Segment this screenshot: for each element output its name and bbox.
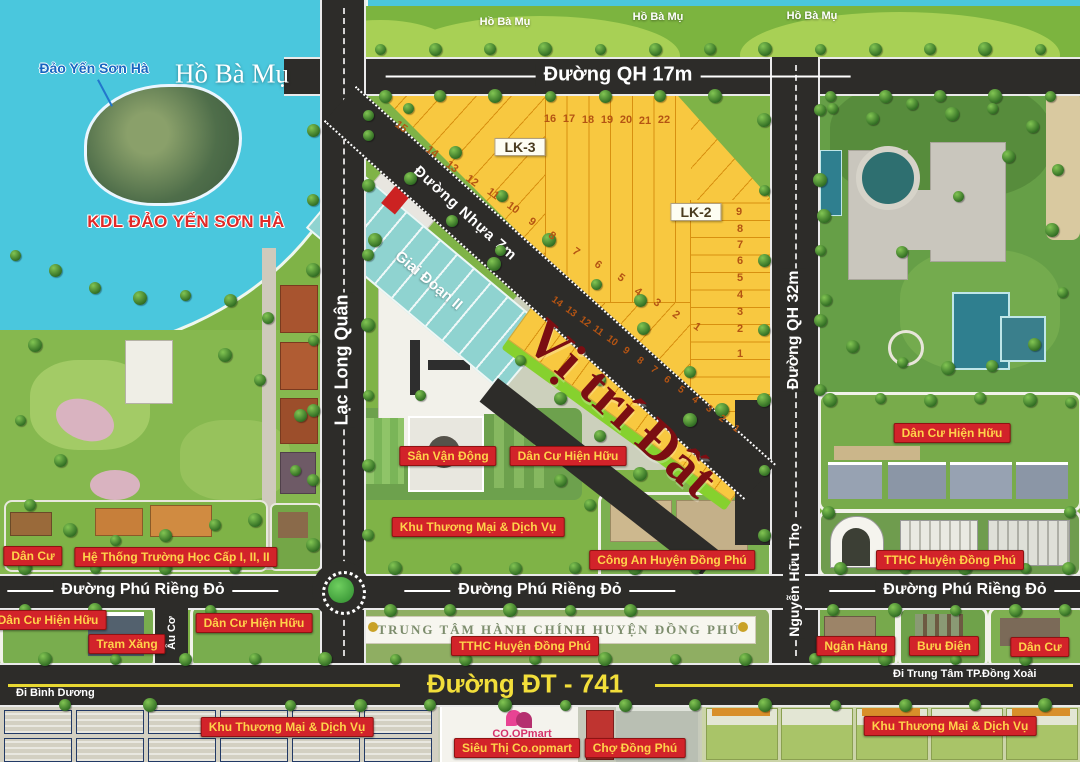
label-khu-tm-dv-center: Khu Thương Mại & Dịch Vụ bbox=[392, 517, 565, 537]
tree-icon bbox=[820, 294, 832, 306]
tree-icon bbox=[307, 124, 320, 137]
tree-icon bbox=[689, 699, 701, 711]
tree-icon bbox=[159, 529, 172, 542]
zone-badge-lk2: LK-2 bbox=[670, 203, 721, 221]
shophouse-building bbox=[4, 738, 72, 762]
tree-icon bbox=[759, 465, 770, 476]
tree-icon bbox=[815, 245, 826, 256]
tree-icon bbox=[10, 250, 21, 261]
road-label-au-co: Âu Cơ bbox=[163, 614, 181, 651]
tree-icon bbox=[1028, 338, 1041, 351]
tree-icon bbox=[363, 390, 374, 401]
tree-icon bbox=[290, 465, 301, 476]
building bbox=[280, 285, 318, 333]
plot-number-lk2_col-2: 2 bbox=[737, 323, 743, 335]
tree-icon bbox=[1026, 120, 1039, 133]
tree-icon bbox=[906, 98, 918, 110]
tree-icon bbox=[487, 257, 501, 271]
tree-icon bbox=[388, 561, 402, 575]
tree-icon bbox=[554, 474, 567, 487]
tree-icon bbox=[390, 654, 401, 665]
tree-icon bbox=[254, 374, 266, 386]
tree-icon bbox=[599, 90, 612, 103]
tree-icon bbox=[827, 103, 838, 114]
label-tthc-huyen-dong-phu-east: TTHC Huyện Đồng Phú bbox=[876, 550, 1024, 570]
tree-icon bbox=[759, 185, 770, 196]
tree-icon bbox=[218, 348, 232, 362]
tree-icon bbox=[363, 130, 374, 141]
tree-icon bbox=[827, 604, 839, 616]
tree-icon bbox=[362, 179, 375, 192]
masterplan-map: TRUNG TÂM HÀNH CHÍNH HUYỆN ĐỒNG PHÚ CO.O… bbox=[0, 0, 1080, 762]
tree-icon bbox=[180, 290, 191, 301]
tree-icon bbox=[619, 699, 632, 712]
building bbox=[278, 512, 308, 538]
tree-icon bbox=[987, 103, 998, 114]
tree-icon bbox=[866, 112, 879, 125]
tree-icon bbox=[830, 700, 841, 711]
plot-number-lk3_top-22: 22 bbox=[658, 114, 670, 126]
tree-icon bbox=[362, 249, 374, 261]
tree-icon bbox=[565, 605, 576, 616]
label-ngan-hang: Ngân Hàng bbox=[816, 636, 895, 656]
tree-icon bbox=[814, 104, 826, 116]
tree-icon bbox=[896, 246, 908, 258]
tree-icon bbox=[953, 191, 964, 202]
tree-icon bbox=[249, 653, 261, 665]
tree-icon bbox=[941, 361, 955, 375]
building bbox=[280, 342, 318, 390]
label-truong-hoc: Hệ Thống Trường Học Cấp I, II, II bbox=[74, 547, 277, 567]
tree-icon bbox=[403, 103, 414, 114]
tree-icon bbox=[684, 366, 696, 378]
tree-icon bbox=[307, 404, 320, 417]
tree-icon bbox=[133, 291, 147, 305]
tree-icon bbox=[758, 254, 771, 267]
tree-icon bbox=[24, 499, 36, 511]
plot-number-lk2_col-8: 8 bbox=[737, 223, 743, 235]
plot-number-lk2_col-5: 5 bbox=[737, 272, 743, 284]
shophouse-building bbox=[76, 710, 144, 734]
tree-icon bbox=[757, 393, 771, 407]
tree-icon bbox=[446, 215, 458, 227]
tree-icon bbox=[38, 652, 52, 666]
shophouse-building bbox=[292, 738, 360, 762]
label-dan-cu-hien-huu-south: Dân Cư Hiện Hữu bbox=[196, 613, 313, 633]
tree-icon bbox=[294, 409, 307, 422]
tree-icon bbox=[817, 209, 831, 223]
tree-icon bbox=[598, 652, 612, 666]
shophouse-building bbox=[364, 710, 432, 734]
tree-icon bbox=[758, 529, 771, 542]
label-cong-an-huyen-dong-phu: Công An Huyện Đồng Phú bbox=[589, 550, 755, 570]
plot-number-lk3_top-17: 17 bbox=[563, 113, 575, 125]
label-dan-cu-hien-huu-sw: Dân Cư Hiện Hữu bbox=[0, 610, 106, 630]
tree-icon bbox=[560, 700, 571, 711]
road-label-phu-rieng-do-east: Đường Phú Riềng Đỏ bbox=[875, 581, 1054, 599]
tree-icon bbox=[362, 459, 375, 472]
tree-icon bbox=[143, 698, 157, 712]
tree-icon bbox=[1038, 698, 1052, 712]
tree-icon bbox=[945, 107, 959, 121]
plot-number-lk2_col-4: 4 bbox=[737, 289, 743, 301]
resort-building bbox=[930, 142, 1006, 262]
tree-icon bbox=[986, 360, 998, 372]
plot-number-lk3_top-19: 19 bbox=[601, 114, 613, 126]
tree-icon bbox=[209, 519, 221, 531]
lake-shore-label-2: Hồ Bà Mụ bbox=[633, 11, 684, 23]
plot-number-lk3_top-20: 20 bbox=[620, 114, 632, 126]
tree-icon bbox=[584, 499, 596, 511]
road-label-qh17: Đường QH 17m bbox=[536, 64, 701, 87]
tree-icon bbox=[834, 562, 847, 575]
tree-icon bbox=[307, 194, 319, 206]
sand-patch bbox=[1046, 90, 1080, 240]
plot-number-lk2_col-6: 6 bbox=[737, 255, 743, 267]
tree-icon bbox=[888, 603, 902, 617]
tree-icon bbox=[1045, 223, 1059, 237]
tree-icon bbox=[28, 338, 42, 352]
road-label-phu-rieng-do-west: Đường Phú Riềng Đỏ bbox=[53, 581, 232, 599]
building bbox=[828, 462, 882, 499]
lake-name-label: Hồ Bà Mụ bbox=[175, 59, 289, 90]
plot-number-lk2_col-9: 9 bbox=[736, 206, 742, 218]
road-label-qh32: Đường QH 32m bbox=[782, 269, 806, 392]
tree-icon bbox=[814, 314, 827, 327]
kdl-resort-label: KDL ĐẢO YẾN SƠN HÀ bbox=[87, 212, 285, 232]
tree-icon bbox=[569, 562, 581, 574]
tree-icon bbox=[897, 357, 908, 368]
tree-icon bbox=[899, 699, 912, 712]
coopmart-logo-icon bbox=[516, 712, 532, 728]
tree-icon bbox=[1045, 91, 1056, 102]
tree-icon bbox=[637, 322, 650, 335]
tree-icon bbox=[978, 42, 992, 56]
shophouse-building bbox=[364, 738, 432, 762]
building-detail bbox=[410, 340, 420, 395]
tree-icon bbox=[624, 604, 637, 617]
tree-icon bbox=[649, 43, 662, 56]
tree-icon bbox=[988, 89, 1002, 103]
building bbox=[834, 446, 920, 460]
plot-number-lk2_col-7: 7 bbox=[737, 239, 743, 251]
tree-icon bbox=[308, 335, 319, 346]
label-khu-tm-dv-se: Khu Thương Mại & Dịch Vụ bbox=[864, 716, 1037, 736]
tree-icon bbox=[757, 113, 771, 127]
lake-shore-label-1: Hồ Bà Mụ bbox=[480, 16, 531, 28]
building-detail bbox=[428, 360, 470, 370]
road-label-nguyen-huu-tho: Nguyễn Hữu Thọ bbox=[783, 521, 805, 639]
roundabout-island bbox=[328, 577, 354, 603]
tree-icon bbox=[708, 89, 722, 103]
tree-icon bbox=[450, 563, 461, 574]
tree-icon bbox=[503, 603, 517, 617]
plot-number-lk2_col-3: 3 bbox=[737, 306, 743, 318]
tree-icon bbox=[404, 172, 417, 185]
tree-icon bbox=[54, 454, 67, 467]
tree-icon bbox=[1002, 150, 1015, 163]
label-san-van-dong: Sân Vận Động bbox=[399, 446, 496, 466]
tree-icon bbox=[368, 233, 382, 247]
building bbox=[95, 508, 143, 536]
tree-icon bbox=[63, 523, 77, 537]
tree-icon bbox=[704, 43, 716, 55]
commercial-building bbox=[781, 708, 853, 760]
tree-icon bbox=[670, 654, 681, 665]
tree-icon bbox=[1064, 506, 1076, 518]
shophouse-building bbox=[4, 710, 72, 734]
building bbox=[888, 462, 946, 499]
direction-dong-xoai: Đi Trung Tâm TP.Đồng Xoài bbox=[893, 668, 1036, 680]
tree-icon bbox=[179, 653, 192, 666]
tree-icon bbox=[434, 90, 446, 102]
tree-icon bbox=[495, 245, 506, 256]
tree-icon bbox=[318, 652, 332, 666]
road-label-dt741: Đường ĐT - 741 bbox=[427, 669, 623, 700]
tree-icon bbox=[307, 474, 319, 486]
tree-icon bbox=[879, 90, 892, 103]
tree-icon bbox=[869, 43, 882, 56]
tree-icon bbox=[1023, 393, 1037, 407]
tree-icon bbox=[1065, 397, 1076, 408]
direction-binh-duong: Đi Bình Dương bbox=[16, 687, 95, 699]
road-label-phu-rieng-do-center: Đường Phú Riềng Đỏ bbox=[450, 581, 629, 599]
label-sieu-thi-coopmart: Siêu Thị Co.opmart bbox=[454, 738, 580, 758]
label-dan-cu-nw: Dân Cư bbox=[3, 546, 62, 566]
emblem-icon bbox=[368, 622, 378, 632]
tree-icon bbox=[415, 390, 426, 401]
tree-icon bbox=[739, 653, 752, 666]
tree-icon bbox=[813, 173, 827, 187]
label-dan-cu-hien-huu-center: Dân Cư Hiện Hữu bbox=[510, 446, 627, 466]
tree-icon bbox=[89, 282, 101, 294]
tree-icon bbox=[498, 698, 512, 712]
tree-icon bbox=[969, 699, 981, 711]
tree-icon bbox=[545, 91, 556, 102]
tree-icon bbox=[924, 394, 937, 407]
commercial-roof bbox=[862, 708, 920, 716]
tree-icon bbox=[306, 263, 320, 277]
zone-badge-lk3: LK-3 bbox=[494, 138, 545, 156]
tree-icon bbox=[110, 535, 121, 546]
road-yellow-line bbox=[655, 684, 1073, 687]
tree-icon bbox=[49, 264, 62, 277]
tree-icon bbox=[384, 604, 397, 617]
shophouse-building bbox=[76, 738, 144, 762]
tree-icon bbox=[509, 562, 522, 575]
plot-number-lk3_top-18: 18 bbox=[582, 114, 594, 126]
tree-icon bbox=[1035, 44, 1046, 55]
plot-row-lk3-top bbox=[545, 96, 691, 303]
tree-icon bbox=[306, 538, 320, 552]
building bbox=[950, 462, 1012, 499]
tree-icon bbox=[595, 44, 606, 55]
tree-icon bbox=[591, 279, 602, 290]
tree-icon bbox=[654, 90, 666, 102]
tree-icon bbox=[262, 312, 274, 324]
pond bbox=[856, 146, 920, 210]
tree-icon bbox=[375, 44, 386, 55]
tree-icon bbox=[1062, 562, 1075, 575]
shophouse-building bbox=[220, 738, 288, 762]
tree-icon bbox=[15, 415, 26, 426]
tree-icon bbox=[224, 294, 237, 307]
shophouse-building bbox=[148, 738, 216, 762]
tree-icon bbox=[429, 43, 442, 56]
tree-icon bbox=[1009, 604, 1022, 617]
plot-number-lk3_top-16: 16 bbox=[544, 113, 556, 125]
label-tram-xang: Trạm Xăng bbox=[88, 634, 165, 654]
tree-icon bbox=[974, 392, 986, 404]
tree-icon bbox=[823, 393, 837, 407]
label-cho-dong-phu: Chợ Đồng Phú bbox=[585, 738, 686, 758]
tree-icon bbox=[361, 318, 375, 332]
tree-icon bbox=[815, 44, 826, 55]
garden-patch bbox=[90, 470, 140, 500]
tree-icon bbox=[248, 513, 262, 527]
tree-icon bbox=[758, 324, 770, 336]
tree-icon bbox=[934, 90, 946, 102]
label-dan-cu-hien-huu-east: Dân Cư Hiện Hữu bbox=[894, 423, 1011, 443]
tree-icon bbox=[363, 110, 374, 121]
tree-icon bbox=[449, 146, 462, 159]
arch-building-door bbox=[842, 528, 870, 566]
tree-icon bbox=[354, 699, 367, 712]
tree-icon bbox=[1059, 604, 1071, 616]
label-dan-cu-se: Dân Cư bbox=[1010, 637, 1069, 657]
phase2-label: Giai Đoạn II bbox=[392, 247, 466, 313]
tree-icon bbox=[822, 506, 835, 519]
tree-icon bbox=[285, 700, 296, 711]
tree-icon bbox=[110, 654, 121, 665]
tree-icon bbox=[538, 42, 552, 56]
tree-icon bbox=[758, 698, 772, 712]
tree-icon bbox=[950, 605, 961, 616]
plot-number-lk2_col-1: 1 bbox=[737, 348, 743, 360]
tree-icon bbox=[424, 699, 436, 711]
building bbox=[1016, 462, 1068, 499]
tree-icon bbox=[379, 90, 392, 103]
tree-icon bbox=[1057, 287, 1068, 298]
tree-icon bbox=[59, 699, 71, 711]
tree-icon bbox=[846, 340, 859, 353]
tree-icon bbox=[488, 89, 502, 103]
tree-icon bbox=[484, 43, 496, 55]
tree-icon bbox=[924, 43, 936, 55]
tree-icon bbox=[825, 91, 836, 102]
lake-shore-label-3: Hồ Bà Mụ bbox=[787, 10, 838, 22]
plot-number-lk3_top-21: 21 bbox=[639, 115, 651, 127]
label-buu-dien: Bưu Điện bbox=[909, 636, 979, 656]
island-name-label: Đảo Yến Sơn Hà bbox=[39, 60, 148, 76]
tree-icon bbox=[444, 604, 456, 616]
label-khu-tm-dv-sw: Khu Thương Mại & Dịch Vụ bbox=[201, 717, 374, 737]
label-tthc-huyen-dong-phu-south: TTHC Huyện Đồng Phú bbox=[451, 636, 599, 656]
emblem-icon bbox=[738, 622, 748, 632]
tree-icon bbox=[875, 393, 886, 404]
tree-icon bbox=[758, 42, 772, 56]
tree-icon bbox=[362, 529, 374, 541]
building bbox=[125, 340, 173, 404]
tree-icon bbox=[1052, 164, 1064, 176]
road-label-lac-long-quan: Lạc Long Quân bbox=[329, 292, 356, 427]
building bbox=[10, 512, 52, 536]
